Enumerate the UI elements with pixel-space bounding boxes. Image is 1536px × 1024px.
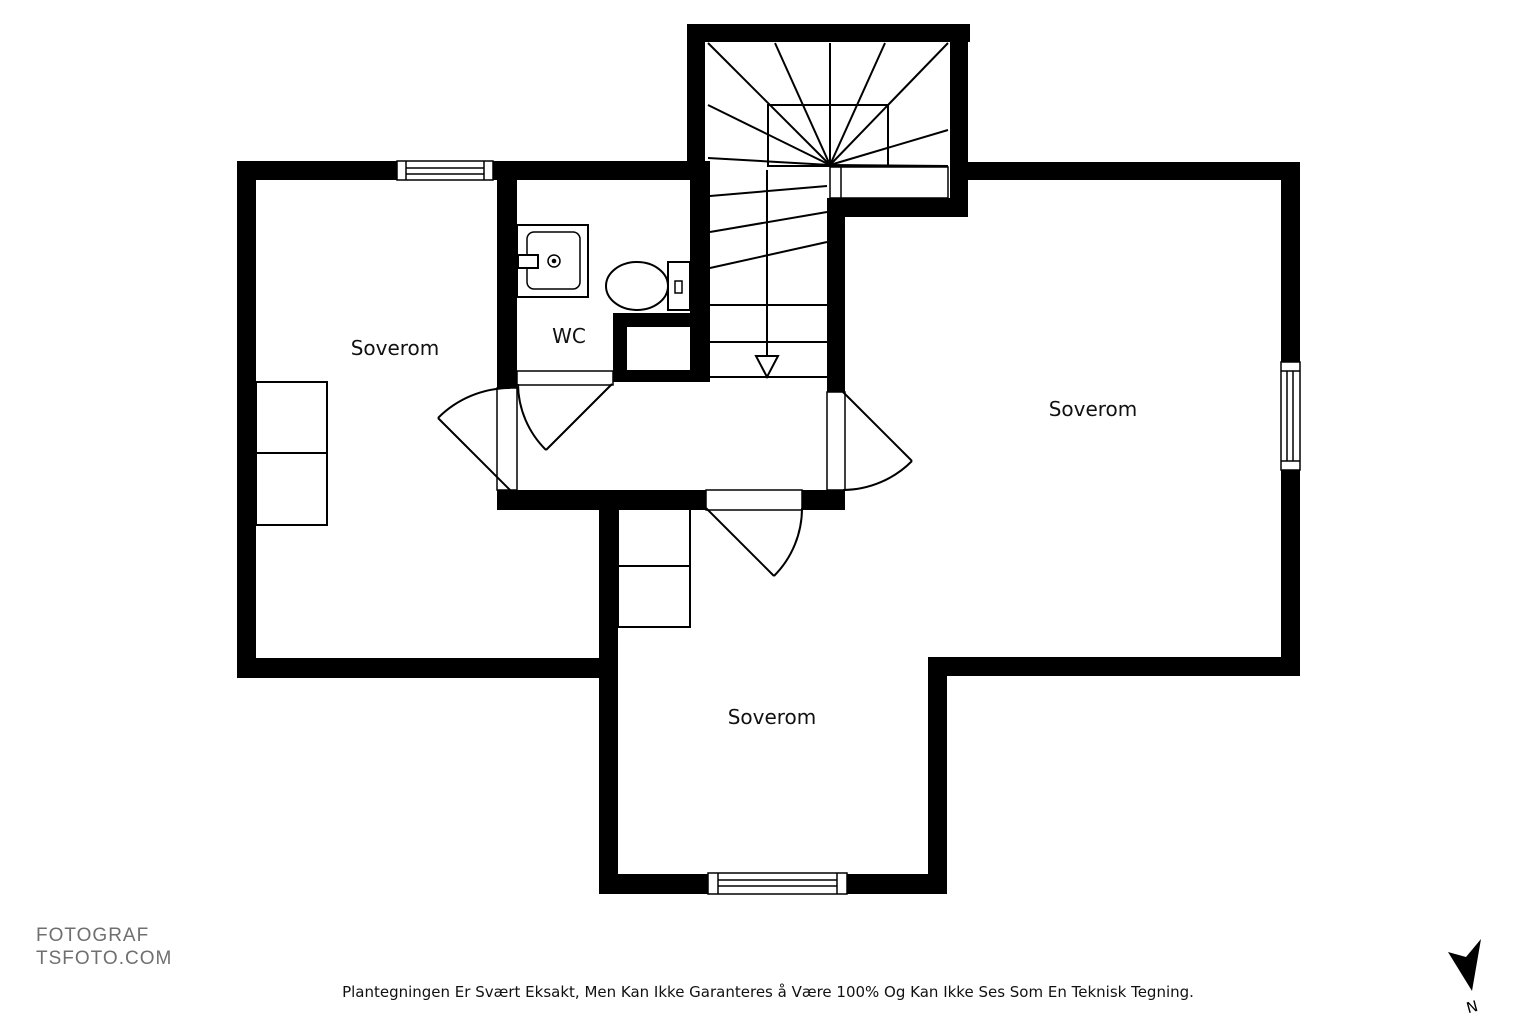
wall-segment	[690, 161, 710, 382]
stair-direction-arrow-icon	[756, 170, 778, 377]
door-swing-wc	[518, 384, 612, 450]
north-arrow-icon	[1448, 939, 1481, 991]
wall-segment	[497, 161, 517, 388]
sink-icon	[517, 225, 588, 297]
room-label-wc: WC	[552, 324, 586, 348]
door-swing-bedroom-right	[843, 392, 912, 490]
wall-segment	[687, 24, 970, 42]
disclaimer-text: Plantegningen Er Svært Eksakt, Men Kan I…	[342, 983, 1194, 1001]
wardrobe-bedroom-left	[256, 382, 327, 525]
wc-fixtures	[517, 225, 690, 310]
door-opening-wc	[517, 371, 613, 385]
stair-inner-rect	[768, 105, 888, 166]
north-arrow: N	[1448, 939, 1481, 1017]
wall-segment	[928, 657, 1300, 676]
stair-landing	[830, 167, 948, 198]
photographer-line1: FOTOGRAF	[36, 925, 149, 946]
stair-run-treads	[710, 186, 827, 377]
north-label: N	[1464, 997, 1480, 1017]
window-top-left	[397, 161, 493, 180]
toilet-icon	[606, 262, 690, 310]
photographer-line2: TSFOTO.COM	[36, 948, 172, 969]
wall-segment	[237, 658, 618, 678]
windows	[397, 161, 1300, 894]
window-bottom	[708, 873, 847, 894]
wardrobe-bedroom-bottom	[618, 508, 690, 627]
door-openings	[497, 371, 845, 510]
wall-segment	[599, 490, 618, 894]
floor-plan-canvas: Soverom WC Soverom Soverom FOTOGRAF TSFO…	[0, 0, 1536, 1024]
door-opening-bedroom-left	[497, 388, 517, 490]
room-label-bedroom-left: Soverom	[351, 336, 440, 360]
door-swing-bedroom-bottom	[706, 508, 802, 576]
door-opening-bedroom-right	[827, 392, 845, 490]
wall-segment	[950, 24, 968, 217]
wall-segment	[237, 161, 256, 678]
wall-segment	[687, 24, 705, 161]
wall-segment	[950, 162, 1300, 180]
room-label-bedroom-bottom: Soverom	[728, 705, 817, 729]
room-label-bedroom-right: Soverom	[1049, 397, 1138, 421]
door-opening-bedroom-bottom	[706, 490, 802, 510]
wall-segment	[613, 313, 708, 327]
wall-segment	[928, 657, 947, 894]
window-right	[1281, 362, 1300, 470]
wall-segment	[613, 370, 710, 382]
wall-segment	[827, 198, 968, 217]
footer: FOTOGRAF TSFOTO.COM Plantegningen Er Svæ…	[36, 925, 1194, 1001]
